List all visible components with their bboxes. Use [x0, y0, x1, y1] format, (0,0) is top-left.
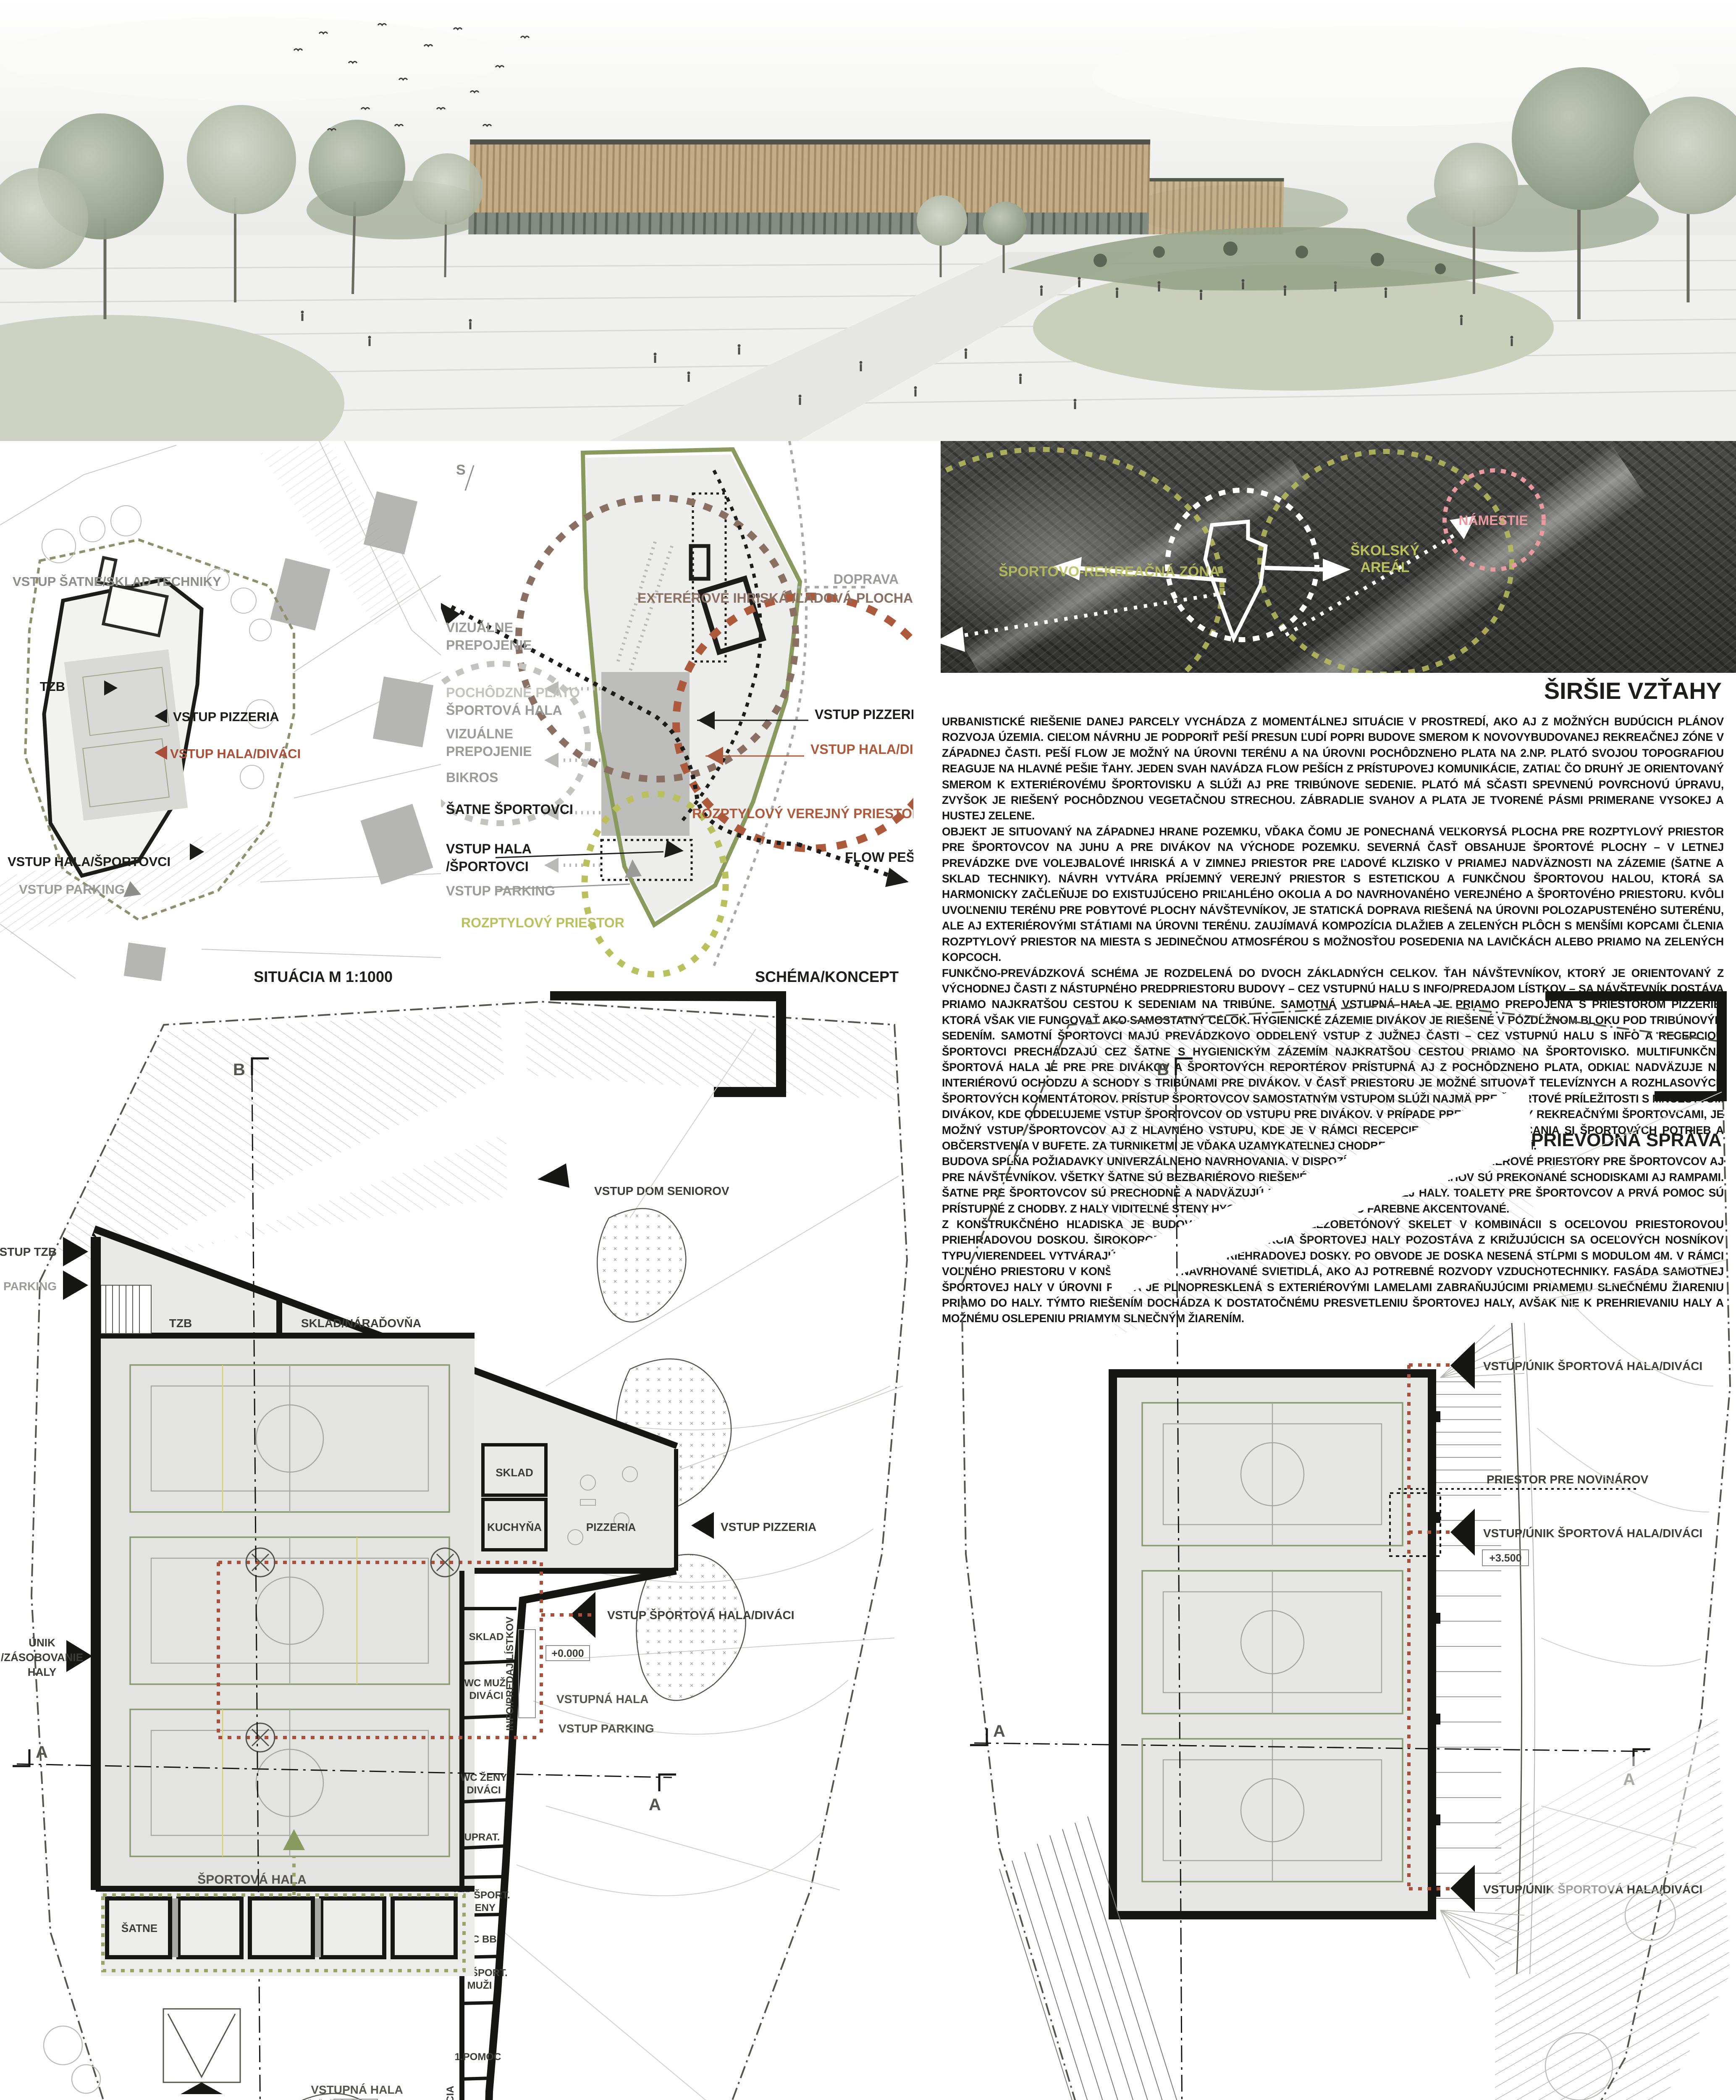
north-icon: S — [456, 462, 474, 491]
p1-trees — [44, 2026, 100, 2093]
p1-label-wc-muzi-a: WC MUŽI — [464, 1677, 508, 1689]
site-plan-panel: VSTUP ŠATNE/SKLAD TECHNIKY TZB VSTUP PIZ… — [0, 441, 441, 991]
p1-label-vstupna-hala1: VSTUPNÁ HALA — [556, 1693, 648, 1706]
label-flow-pesi: FLOW PEŠÍ — [845, 850, 913, 865]
p1-arrow-seniorov — [538, 1163, 569, 1188]
label-vstup-satne: VSTUP ŠATNE/SKLAD TECHNIKY — [13, 574, 221, 589]
p1-label-wc-muzi-b: DIVÁCI — [469, 1690, 503, 1701]
label-vstup-hala-a: VSTUP HALA — [446, 841, 532, 856]
p2-label-novinari: PRIESTOR PRE NOVINÁROV — [1487, 1473, 1649, 1486]
p2-dom-seniorov — [1545, 995, 1722, 1096]
label-vstup-hala-sportovci: VSTUP HALA/ŠPORTOVCI — [8, 854, 170, 869]
p2-tribunes-east — [1436, 1382, 1501, 1898]
p1-stairs-nw — [101, 1285, 151, 1333]
ext-courts — [98, 558, 167, 636]
label-skolsky-b: AREÁL — [1360, 559, 1409, 575]
label-vstup-hala-divaci: VSTUP HALA/DIVÁCI — [170, 746, 301, 761]
p1-label-satne: ŠATNE — [121, 1922, 157, 1935]
p1-label-info-recepcia: INFO/RECEPCIA — [445, 2086, 456, 2100]
p1-hall-floor — [101, 1339, 475, 1889]
p2-label-unik1: VSTUP/ÚNIK ŠPORTOVÁ HALA/DIVÁCI — [1483, 1359, 1702, 1373]
paragraph-urbanisticke: URBANISTICKÉ RIEŠENIE DANEJ PARCELY VYCH… — [942, 714, 1724, 824]
p1-label-wc-sport-muzi-b: MUŽI — [467, 1979, 492, 1991]
circle-rekreacna-zona — [941, 449, 1222, 673]
aerial-heading: ŠIRŠIE VZŤAHY — [1544, 677, 1722, 704]
label-schema-parking: VSTUP PARKING — [446, 883, 555, 898]
p1-label-vstup-parking-w: VSTUP PARKING — [0, 1280, 57, 1293]
schema-panel: S DOPRAVA EXTERÉROVÉ IHRISKÁ /ĽADOVÁ PLO… — [441, 441, 913, 991]
label-schema-pizzeria: VSTUP PIZZERIA — [815, 707, 913, 722]
p1-label-vstup-divaci: VSTUP ŠPORTOVÁ HALA/DIVÁCI — [607, 1608, 794, 1622]
p1-parking-ramp — [163, 2009, 240, 2082]
p1-label-sportova-hala: ŠPORTOVÁ HALA — [197, 1872, 306, 1887]
p1-arrows-west — [63, 1237, 92, 1672]
p1-arrow-parking-s — [181, 2082, 223, 2094]
svg-text:S: S — [456, 462, 466, 478]
floor-plan-1: VSTUP DOM SENIOROV TZB SKLAD/NÁRAĎOVŇA S… — [0, 991, 915, 2100]
p1-label-wc-zeny-b: DIVÁCI — [467, 1784, 501, 1796]
p1-label-pomoc: 1.POMOC — [455, 2051, 501, 2063]
svg-text:A: A — [649, 1795, 661, 1814]
label-vstup-hala-b: /ŠPORTOVCI — [446, 859, 529, 874]
label-schema-hala: ŠPORTOVÁ HALA — [446, 703, 562, 718]
render-visualization — [0, 0, 1736, 441]
p1-label-info-predaj: INFO/PREDAJ LÍSTKOV — [504, 1617, 516, 1731]
label-vizualne2a: VIZUÁLNE — [446, 726, 513, 741]
p1-label-seniorov: VSTUP DOM SENIOROV — [594, 1184, 729, 1197]
p1-label-sklad-naradovna: SKLAD/NÁRAĎOVŇA — [301, 1317, 421, 1330]
svg-text:A: A — [36, 1743, 48, 1761]
label-zona: ŠPORTOVO-REKREAČNÁ ZÓNA — [999, 563, 1219, 580]
svg-text:A: A — [993, 1722, 1005, 1740]
p2-label-level: +3.500 — [1489, 1552, 1521, 1564]
label-ihriska: EXTERÉROVÉ IHRISKÁ /ĽADOVÁ PLOCHA, VOLEJ… — [637, 591, 913, 606]
p1-label-unik-a: ÚNIK — [29, 1636, 55, 1649]
label-vizualne2b: PREPOJENIE — [446, 744, 532, 759]
label-vstup-pizzeria: VSTUP PIZZERIA — [173, 709, 279, 724]
schema-caption: SCHÉMA/KONCEPT — [755, 968, 899, 985]
label-doprava: DOPRAVA — [834, 572, 899, 587]
p1-arrow-pizzeria — [691, 1512, 714, 1539]
label-plato: POCHÔDZNÉ PLATO — [446, 685, 580, 700]
label-tzb: TZB — [40, 679, 65, 694]
p1-label-vstup-parking-e: VSTUP PARKING — [559, 1722, 654, 1735]
label-vstup-parking: VSTUP PARKING — [19, 882, 125, 897]
p1-label-sklad2: SKLAD — [469, 1631, 504, 1643]
label-schema-hala-divaci: VSTUP HALA/DIVÁCI — [810, 742, 913, 757]
label-namestie: NÁMESTIE — [1458, 513, 1528, 528]
label-satne-sportovci: ŠATNE ŠPORTOVCI — [446, 802, 573, 817]
label-rozptylovy-verejny: ROZPTYLOVÝ VEREJNÝ PRIESTOR — [692, 806, 913, 821]
architecture-poster: { "poster": { "title": "ŠPORTOVÁ HALA BR… — [0, 0, 1736, 2100]
label-rozptylovy-priestor: ROZPTYLOVÝ PRIESTOR — [461, 915, 624, 930]
floor-plan-2: VSTUP/ÚNIK ŠPORTOVÁ HALA/DIVÁCI VSTUP/ÚN… — [915, 991, 1736, 2100]
p1-arrow-divaci — [570, 1592, 595, 1638]
site-caption: SITUÁCIA M 1:1000 — [254, 968, 393, 985]
p2-entry-arrows — [1450, 1342, 1475, 1912]
p1-label-sklad1: SKLAD — [496, 1466, 533, 1479]
label-vizualne1b: PREPOJENIE — [446, 638, 532, 653]
svg-text:B: B — [233, 1060, 245, 1079]
p2-label-unik2: VSTUP/ÚNIK ŠPORTOVÁ HALA/DIVÁCI — [1483, 1526, 1702, 1540]
label-skolsky-a: ŠKOLSKÝ — [1351, 542, 1420, 559]
p1-label-unik-b: /ZÁSOBOVANIE — [1, 1651, 83, 1664]
svg-text:B: B — [1157, 1060, 1169, 1079]
paragraph-objekt: OBJEKT JE SITUOVANÝ NA ZÁPADNEJ HRANE PO… — [942, 824, 1724, 966]
p1-label-vstup-tzb: VSTUP TZB — [0, 1245, 57, 1258]
p1-label-level-a: +0.000 — [551, 1648, 584, 1659]
p1-label-tzb: TZB — [169, 1317, 192, 1330]
p1-label-uprat: UPRAT. — [464, 1832, 500, 1843]
label-vizualne1a: VIZUÁLNE — [446, 620, 513, 635]
p1-label-pizzeria: PIZZERIA — [586, 1521, 636, 1533]
p1-label-kuchyna: KUCHYŇA — [487, 1521, 542, 1533]
p1-label-unik-c: HALY — [28, 1666, 56, 1678]
label-bikros: BIKROS — [446, 770, 498, 785]
p1-label-vstup-pizzeria: VSTUP PIZZERIA — [721, 1520, 816, 1533]
aerial-overlay: ŠPORTOVO-REKREAČNÁ ZÓNA ŠKOLSKÝ AREÁL NÁ… — [941, 441, 1736, 673]
p1-label-vstupna-hala2: VSTUPNÁ HALA — [311, 2083, 403, 2096]
